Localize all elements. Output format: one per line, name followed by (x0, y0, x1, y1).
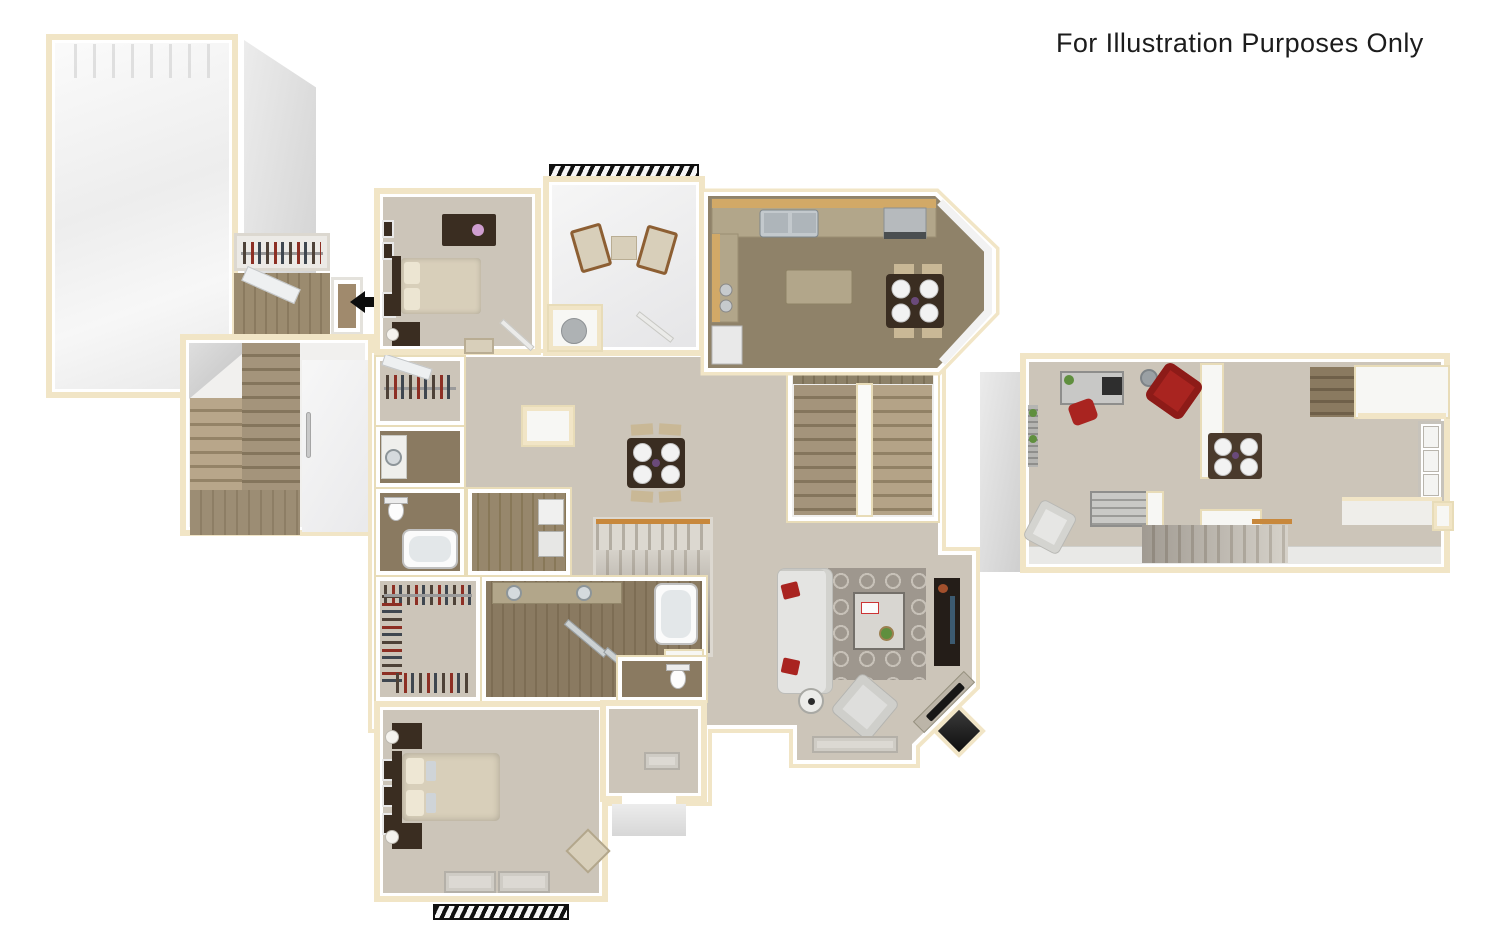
dining-chair (631, 490, 654, 503)
hall-door-handle (306, 412, 311, 458)
lounge-chair-right (636, 224, 679, 275)
plate (661, 443, 680, 462)
vanity-sink-left (506, 585, 522, 601)
lounge-chair-left (570, 222, 613, 273)
shelf-plant (1029, 435, 1037, 443)
dining-chair (659, 423, 682, 436)
nightstand (392, 823, 422, 849)
hall-door-panel (302, 360, 374, 532)
dryer (538, 531, 564, 557)
garden-tub-basin (661, 590, 691, 638)
sink-basin-right (792, 213, 816, 233)
garden-tub (654, 583, 698, 645)
toilet-tank (384, 497, 408, 504)
bathroom-vanity-room (376, 427, 464, 487)
hanging-clothes (396, 673, 472, 693)
disclaimer-text: For Illustration Purposes Only (1056, 28, 1424, 59)
centerpiece (911, 297, 919, 305)
pillow (426, 761, 436, 781)
stairwell-upper (1310, 367, 1356, 417)
porch-side-table (611, 236, 637, 260)
counter-wood-edge (712, 199, 936, 208)
breakfast-table (627, 438, 685, 488)
vanity-sink (385, 449, 402, 466)
toilet-tank (666, 664, 690, 671)
washer (538, 499, 564, 525)
bonus-stairs-down (1142, 525, 1288, 563)
bookshelf (1028, 405, 1038, 467)
plate (633, 465, 652, 484)
closet-upper (376, 357, 464, 425)
dresser (442, 214, 496, 246)
plate (892, 304, 910, 322)
master-bed (392, 751, 502, 823)
centerpiece (652, 459, 660, 467)
door-swing (636, 311, 674, 343)
screened-porch (543, 176, 705, 356)
table-decor (808, 698, 815, 705)
entry-foyer-floor (234, 273, 330, 335)
desk-plant (1064, 375, 1074, 385)
master-bedroom (374, 701, 608, 902)
centerpiece (1232, 452, 1239, 459)
toilet (670, 669, 686, 689)
kitchen-chair (894, 328, 914, 338)
stairs-upper-flight (242, 343, 300, 495)
counter-left-wood-edge (712, 234, 720, 322)
floor-plan-canvas: For Illustration Purposes Only (0, 0, 1500, 938)
bedroom-2 (374, 188, 541, 355)
refrigerator (712, 326, 742, 364)
kitchen-chair (894, 264, 914, 274)
toilet (388, 501, 404, 521)
walk-in-closet (376, 577, 480, 701)
lamp (385, 730, 399, 744)
hanging-clothes (243, 242, 321, 264)
bonus-stairs-shadow (1142, 525, 1288, 563)
corner-closet-box (1434, 503, 1452, 529)
floor-vent (498, 871, 550, 893)
wall-art (382, 220, 394, 238)
garage-ceiling-joists (58, 44, 226, 78)
plate (661, 465, 680, 484)
stairs-down-balusters (596, 524, 710, 550)
powder-room (618, 657, 706, 701)
coffee-table (853, 592, 905, 650)
headboard (392, 751, 402, 823)
low-shelf (1090, 491, 1148, 527)
magazine (861, 602, 879, 614)
corner-chair (565, 828, 610, 873)
sink-basin-left (764, 213, 788, 233)
kitchen (698, 186, 1008, 382)
nightstand (392, 723, 422, 749)
plate (920, 280, 938, 298)
bed-2 (392, 256, 482, 316)
window-pane (1423, 426, 1439, 448)
floor-vent (444, 871, 496, 893)
window-pane (1423, 474, 1439, 496)
stairs-up-right-flight (873, 385, 932, 515)
vanity-sink-right (576, 585, 592, 601)
pillow (404, 288, 420, 310)
sofa (777, 568, 833, 694)
throw-pillow (781, 657, 801, 675)
nightstand (392, 322, 420, 346)
bonus-stairs-handrail (1252, 519, 1292, 524)
game-table (1208, 433, 1262, 479)
plate (1214, 438, 1232, 456)
cooktop-burner (720, 300, 732, 312)
window-pane (1423, 450, 1439, 472)
pillow (406, 758, 424, 784)
deck-hatch-marker (433, 904, 569, 920)
bonus-window (1418, 421, 1444, 501)
closet-rod (384, 594, 472, 597)
stairwell-side-wall (1356, 367, 1448, 417)
hanging-clothes (382, 595, 402, 683)
round-side-table (798, 688, 824, 714)
kitchen-chair (922, 264, 942, 274)
porch-storage-closet (549, 306, 601, 350)
linen-closet (523, 407, 573, 445)
plate (633, 443, 652, 462)
stairs-up-rail-wall (858, 385, 871, 515)
laundry-room (468, 489, 570, 575)
storage-table (561, 318, 587, 344)
cooktop-burner (720, 284, 732, 296)
plate (1214, 458, 1232, 476)
console-decor (938, 584, 948, 593)
bathtub (402, 529, 458, 569)
door-swing (499, 319, 534, 352)
dining-chair (659, 490, 682, 503)
flower-vase (472, 224, 484, 236)
dining-chair (631, 423, 654, 436)
hanging-clothes (386, 375, 454, 399)
media-console (934, 578, 960, 666)
front-foyer (600, 700, 707, 802)
bathroom-tub-room (376, 489, 464, 575)
range-front (884, 232, 926, 239)
plate (892, 280, 910, 298)
plate (920, 304, 938, 322)
bathtub-basin (409, 536, 451, 562)
headboard (392, 256, 401, 316)
table-plant (879, 626, 894, 641)
bonus-exterior-wall-shadow (980, 372, 1020, 572)
stairs-lower-flight (190, 398, 242, 495)
tv-screen (950, 596, 955, 644)
bonus-room-wing (1020, 353, 1450, 573)
lamp (385, 830, 399, 844)
pillow (404, 262, 420, 284)
lamp (386, 328, 399, 341)
stairs-up-left-flight (794, 385, 856, 515)
throw-pillow (780, 581, 800, 600)
shelf-plant (1029, 409, 1037, 417)
front-door-opening (622, 794, 676, 804)
front-stoop (612, 804, 686, 836)
stair-hall (180, 334, 374, 536)
bonus-counter-ledge (1342, 497, 1442, 525)
kitchen-island (786, 270, 852, 304)
kitchen-chair (922, 328, 942, 338)
stairwell-ledge (1358, 413, 1446, 419)
accent-chair (464, 338, 494, 354)
plate (1240, 438, 1258, 456)
living-window-seat (812, 736, 898, 753)
floor-vent (644, 752, 680, 770)
stair-landing (190, 490, 300, 535)
shower-door-panel (564, 619, 608, 658)
plate (1240, 458, 1258, 476)
pillow (426, 793, 436, 813)
printer (1102, 377, 1122, 395)
pillow (406, 790, 424, 816)
